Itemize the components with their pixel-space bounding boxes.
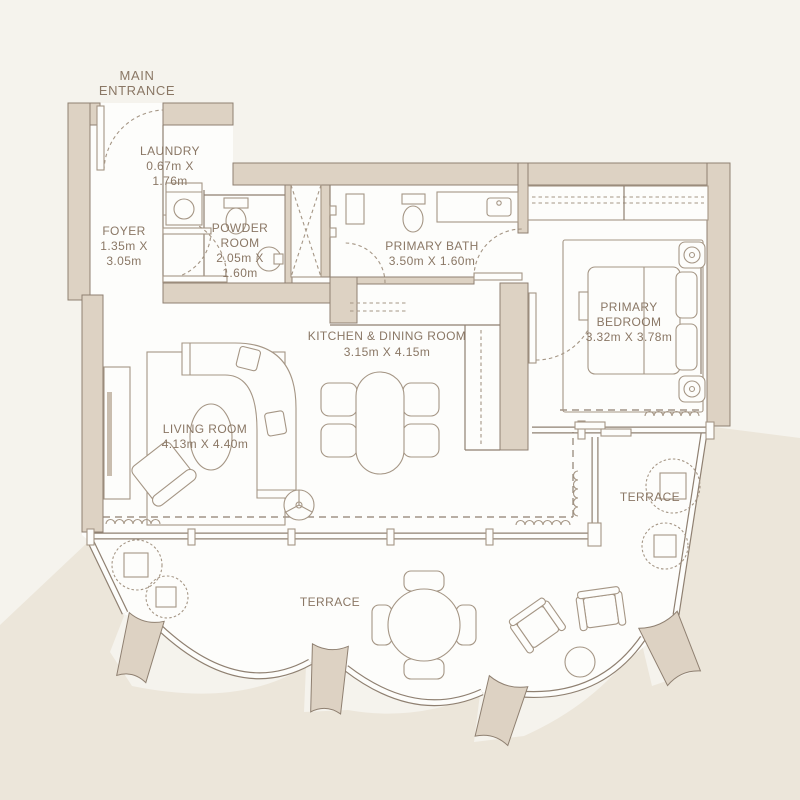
linen-closet: [291, 185, 321, 277]
bed-bench: [579, 292, 588, 320]
entry-door-leaf: [97, 106, 104, 170]
terrace-chair: [404, 659, 444, 679]
rail-corner-post: [588, 523, 601, 546]
wall-left-lower: [82, 295, 103, 532]
lounge-seat: [583, 594, 619, 628]
laundry-door-leaf: [163, 228, 211, 234]
toilet-bowl: [403, 206, 423, 232]
primary-bath-label: PRIMARY BATH: [385, 239, 479, 253]
planter-box: [156, 587, 176, 607]
dining-chair: [403, 424, 439, 457]
nightstand: [679, 376, 705, 402]
sliding-door-panel: [575, 422, 605, 429]
bath-door-leaf: [474, 273, 522, 280]
wall-left-upper: [68, 103, 90, 300]
laundry-dims: 1.76m: [152, 174, 187, 188]
terrace-chair: [404, 571, 444, 591]
laundry-fixtures: [166, 183, 202, 225]
wall-right: [707, 163, 730, 426]
shower-seat: [346, 194, 364, 224]
laundry-label: LAUNDRY: [140, 144, 200, 158]
wall-entry-right: [163, 103, 233, 125]
kitchen-dining-label: KITCHEN & DINING ROOM: [308, 329, 466, 343]
kitchen-dining-dims: 3.15m X 4.15m: [344, 345, 431, 359]
toilet-tank: [402, 194, 425, 204]
terrace-label: TERRACE: [620, 490, 680, 504]
powder-door-leaf: [163, 276, 227, 282]
dining-table: [356, 372, 404, 474]
powder-room-label: POWDER: [212, 221, 268, 235]
foyer-dims: 1.35m X: [100, 239, 148, 253]
dining-chair: [321, 424, 357, 457]
wall-bath-bottom: [357, 277, 474, 284]
planter-box: [654, 535, 676, 557]
wall-closet-right: [321, 185, 330, 277]
main-entrance-label: MAIN: [120, 68, 155, 83]
pillow: [676, 272, 697, 318]
sliding-door-panel: [601, 429, 631, 436]
side-table: [565, 647, 595, 677]
primary-bedroom-dims: 3.32m X 3.78m: [586, 330, 673, 344]
foyer-label: FOYER: [102, 224, 145, 238]
tv: [107, 392, 112, 476]
wall-top-band: [233, 163, 712, 185]
shower-control: [330, 206, 336, 215]
wall-kitchen-bedroom: [500, 283, 528, 450]
foyer-dims: 3.05m: [106, 254, 141, 268]
living-room-dims: 4.13m X 4.40m: [162, 437, 249, 451]
powder-room-dims: 1.60m: [222, 266, 257, 280]
powder-room-dims: 2.05m X: [216, 251, 264, 265]
rail-post: [387, 529, 394, 545]
rail-post: [288, 529, 295, 545]
rail-post: [486, 529, 493, 545]
living-room-label: LIVING ROOM: [163, 422, 247, 436]
rail-post: [706, 422, 714, 439]
main-entrance-label: ENTRANCE: [99, 83, 175, 98]
bedroom-door-leaf: [529, 293, 536, 363]
sofa-pillow: [264, 410, 287, 436]
dining-chair: [403, 383, 439, 416]
rail-post: [188, 529, 195, 545]
pillar: [308, 644, 349, 714]
wall-kitchen-chunk: [330, 277, 357, 323]
rail-post: [87, 529, 94, 545]
planter-box: [124, 553, 148, 577]
sofa-pillow: [236, 346, 261, 371]
terrace-label: TERRACE: [300, 595, 360, 609]
wall-under-powder: [163, 283, 330, 303]
wall-bath-bedroom: [518, 163, 528, 233]
floor-plan: MAIN ENTRANCE LAUNDRY 0.67m X 1.76m FOYE…: [0, 0, 800, 800]
toilet-tank: [224, 198, 248, 208]
primary-bedroom-label: BEDROOM: [597, 315, 662, 329]
nightstand: [679, 242, 705, 268]
powder-room-label: ROOM: [221, 236, 260, 250]
terrace-table: [388, 589, 460, 661]
primary-bath-dims: 3.50m X 1.60m: [389, 254, 476, 268]
shower-control: [330, 228, 336, 237]
primary-bedroom-label: PRIMARY: [600, 300, 657, 314]
laundry-dims: 0.67m X: [146, 159, 194, 173]
pillow: [676, 324, 697, 370]
dining-chair: [321, 383, 357, 416]
powder-faucet: [274, 254, 283, 264]
